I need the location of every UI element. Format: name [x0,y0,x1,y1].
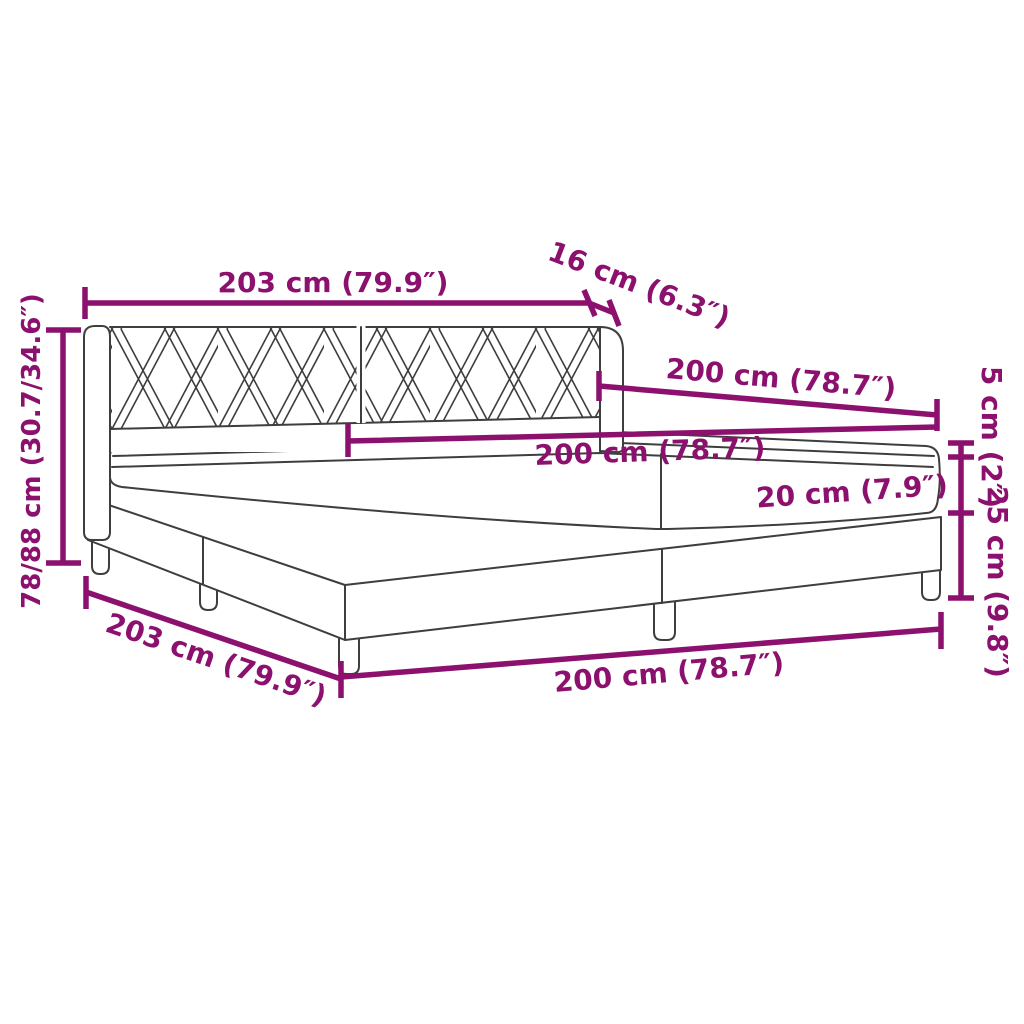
dim-label-top-width: 203 cm (79.9″) [218,269,449,297]
bed-line-art [0,0,1024,1024]
dim-label-total-height: 78/88 cm (30.7/34.6″) [19,293,45,609]
headboard-pattern-panel [110,327,600,429]
dim-label-base-height: 25 cm (9.8″) [983,486,1011,678]
dim-right-height-line [948,443,974,598]
headboard-left-wing [84,326,110,540]
dim-total-height-line [46,330,81,563]
bed-leg [654,600,675,640]
bed-dimension-diagram: 203 cm (79.9″) 16 cm (6.3″) 200 cm (78.7… [0,0,1024,1024]
dim-label-mattress-length: 200 cm (78.7″) [534,434,766,470]
